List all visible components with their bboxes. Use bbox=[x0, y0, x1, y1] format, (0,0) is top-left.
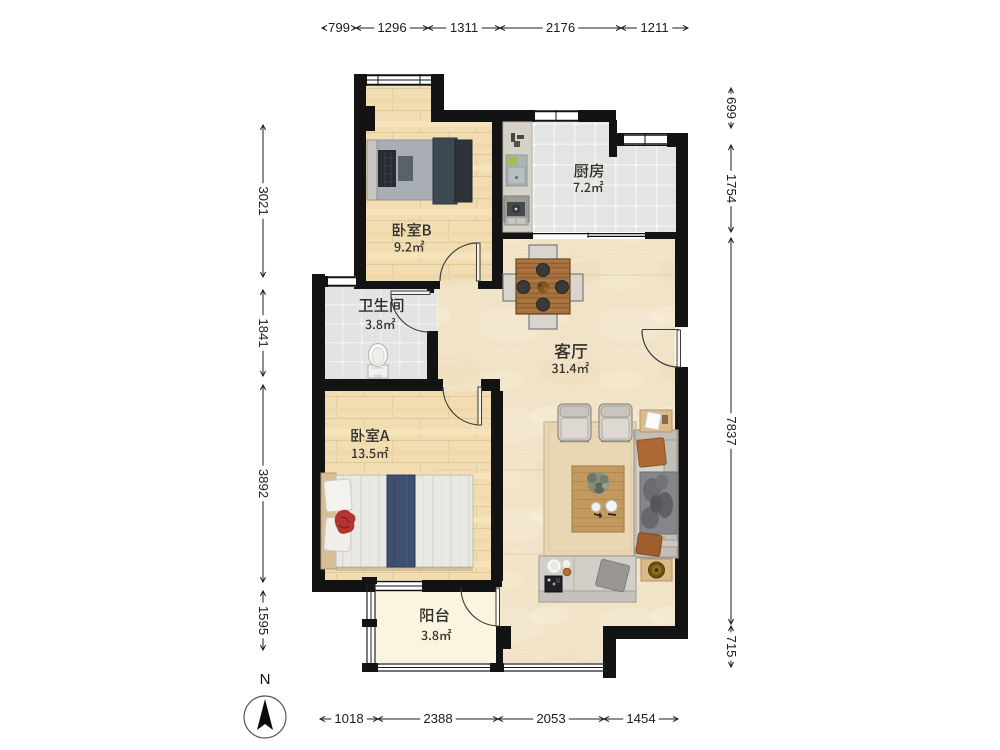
svg-text:2053: 2053 bbox=[536, 711, 565, 726]
svg-text:1211: 1211 bbox=[640, 20, 668, 35]
svg-text:3892: 3892 bbox=[256, 469, 271, 498]
svg-text:715: 715 bbox=[724, 635, 739, 657]
svg-text:3021: 3021 bbox=[256, 186, 271, 215]
svg-text:N: N bbox=[260, 671, 271, 688]
svg-text:1454: 1454 bbox=[626, 711, 655, 726]
svg-text:1018: 1018 bbox=[334, 711, 363, 726]
svg-text:1311: 1311 bbox=[450, 20, 478, 35]
svg-text:1595: 1595 bbox=[256, 606, 271, 635]
svg-text:1841: 1841 bbox=[256, 318, 271, 347]
svg-text:7837: 7837 bbox=[724, 416, 739, 445]
svg-text:699: 699 bbox=[724, 97, 739, 119]
svg-text:2388: 2388 bbox=[423, 711, 452, 726]
svg-text:1296: 1296 bbox=[377, 20, 406, 35]
svg-text:2176: 2176 bbox=[546, 20, 575, 35]
svg-text:1754: 1754 bbox=[724, 174, 739, 203]
svg-text:799: 799 bbox=[328, 20, 350, 35]
